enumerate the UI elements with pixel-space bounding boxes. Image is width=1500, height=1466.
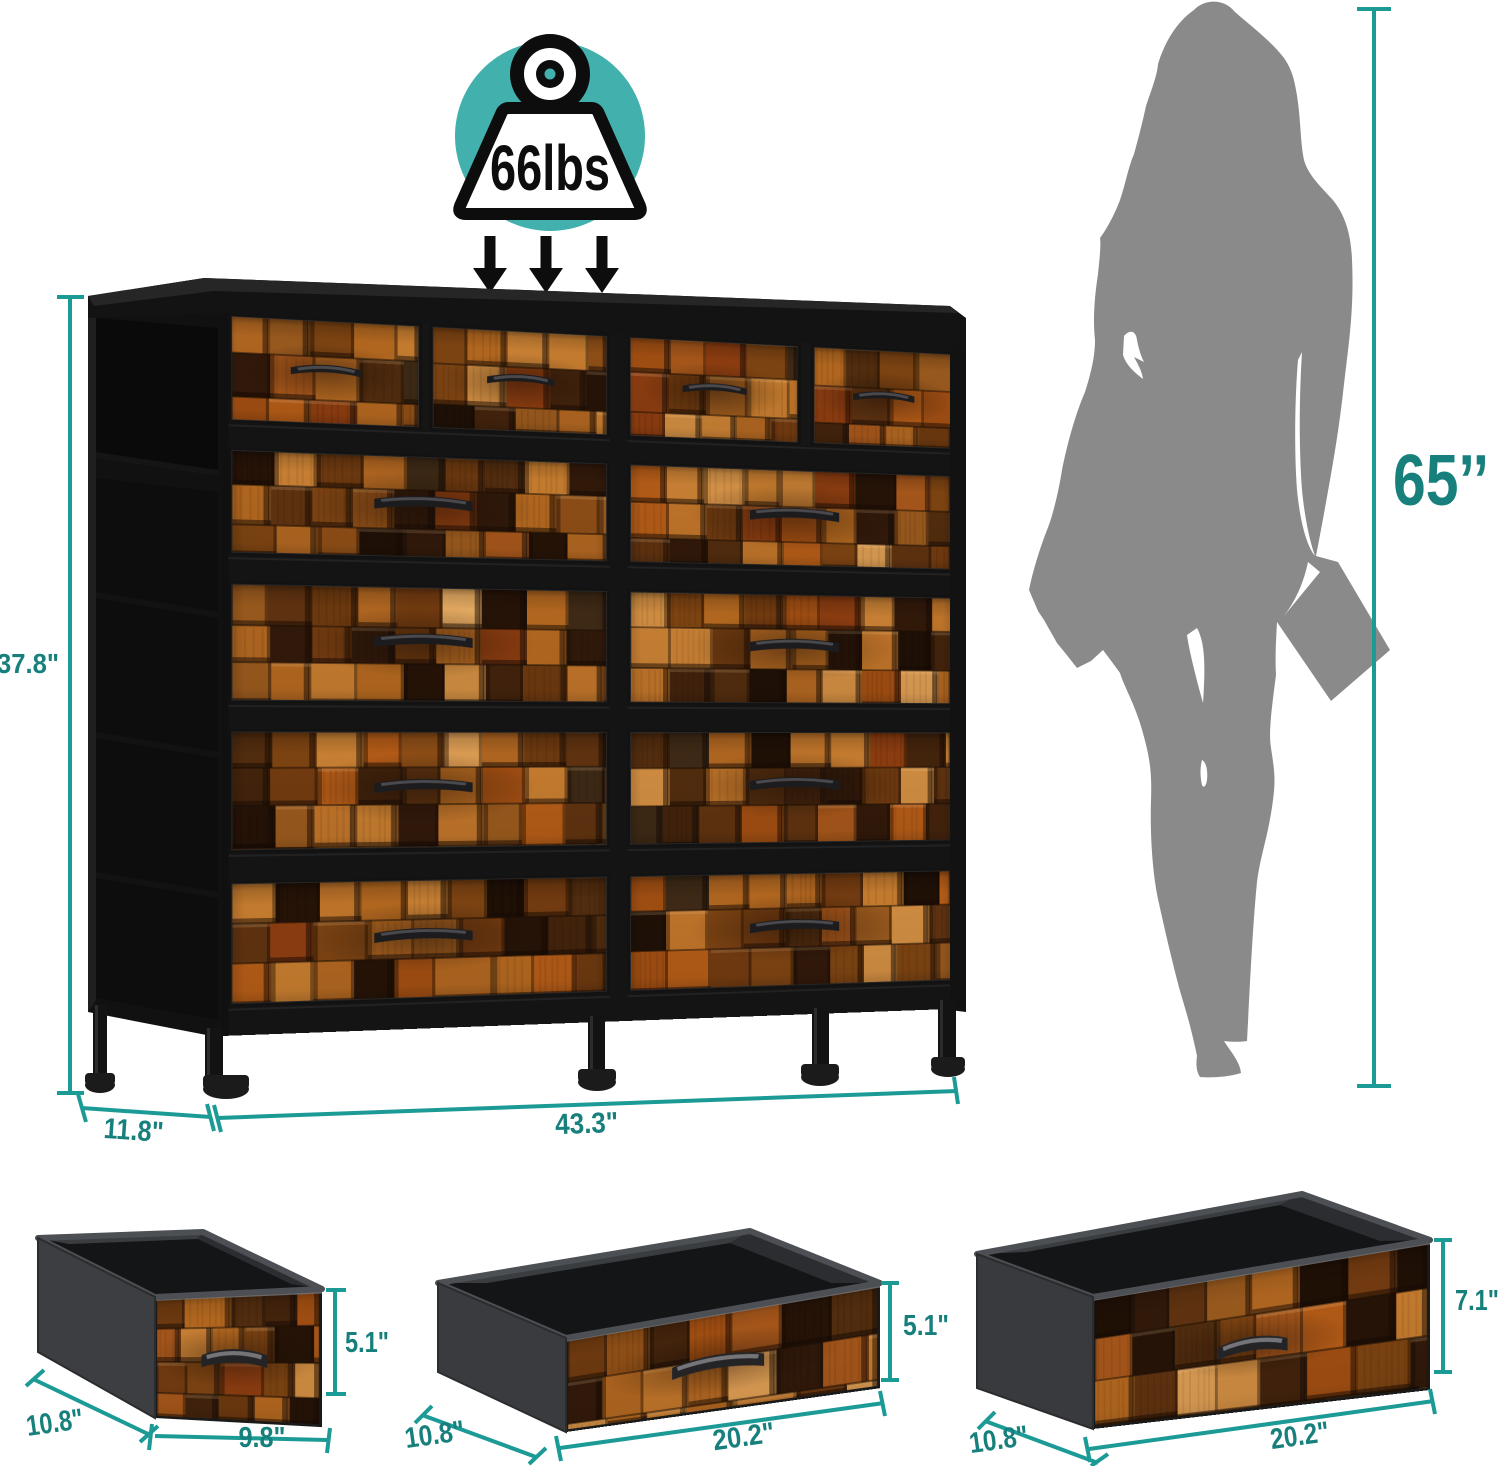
svg-text:7.1": 7.1" xyxy=(1455,1285,1499,1317)
svg-text:20.2": 20.2" xyxy=(1268,1416,1331,1456)
svg-text:20.2": 20.2" xyxy=(711,1417,777,1457)
svg-text:10.8": 10.8" xyxy=(967,1420,1030,1460)
svg-text:5.1": 5.1" xyxy=(345,1327,389,1359)
svg-text:65’’: 65’’ xyxy=(1393,441,1489,521)
svg-text:9.8": 9.8" xyxy=(239,1422,286,1454)
svg-text:10.8": 10.8" xyxy=(403,1415,467,1455)
svg-text:10.8": 10.8" xyxy=(24,1403,85,1443)
svg-text:66lbs: 66lbs xyxy=(490,132,610,204)
svg-text:5.1": 5.1" xyxy=(903,1310,949,1342)
svg-text:11.8": 11.8" xyxy=(103,1113,165,1149)
svg-text:37.8": 37.8" xyxy=(0,648,59,679)
svg-text:43.3": 43.3" xyxy=(555,1107,619,1141)
